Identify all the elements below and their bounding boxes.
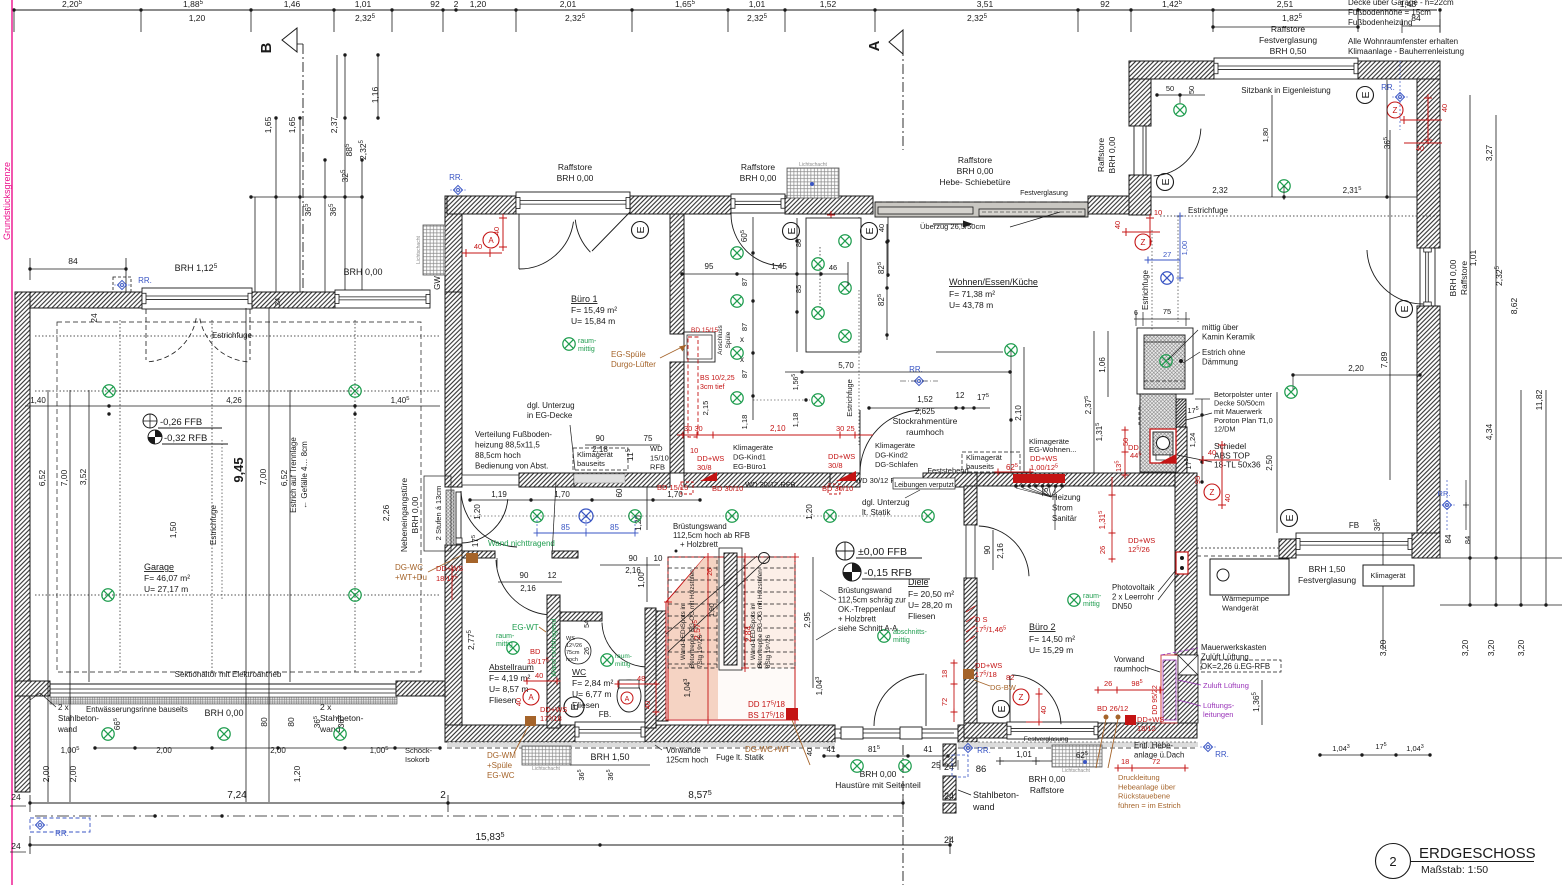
- svg-text:1,24: 1,24: [1188, 433, 1197, 448]
- svg-text:41: 41: [924, 745, 933, 754]
- svg-text:90: 90: [596, 434, 605, 443]
- svg-text:2,20: 2,20: [1348, 364, 1364, 373]
- svg-text:E: E: [1399, 305, 1411, 312]
- svg-text:50: 50: [1166, 84, 1174, 93]
- svg-text:Festverglasung: Festverglasung: [1024, 736, 1069, 743]
- svg-text:90: 90: [520, 571, 529, 580]
- svg-text:wand: wand: [972, 802, 995, 812]
- svg-text:Sektionaltor mit Elektroantrie: Sektionaltor mit Elektroantrieb: [175, 670, 282, 679]
- svg-text:Wärmepumpe: Wärmepumpe: [1222, 594, 1269, 603]
- svg-text:lt. Statik: lt. Statik: [862, 508, 891, 517]
- svg-text:Zuluft Lüftung: Zuluft Lüftung: [1203, 681, 1249, 690]
- svg-text:Leibungen verputzt: Leibungen verputzt: [894, 482, 954, 489]
- svg-text:Grundstücksgrenze: Grundstücksgrenze: [2, 162, 12, 240]
- svg-text:EG-Büro1: EG-Büro1: [733, 462, 766, 471]
- svg-text:-0,32 RFB: -0,32 RFB: [164, 433, 207, 444]
- svg-text:2,625: 2,625: [915, 407, 936, 416]
- svg-text:84: 84: [1463, 536, 1472, 544]
- svg-text:2,18: 2,18: [592, 445, 608, 454]
- svg-text:Betontreppe EG-OG mit Holzstuf: Betontreppe EG-OG mit Holzstufen: [757, 569, 764, 668]
- svg-text:2,16: 2,16: [625, 566, 641, 575]
- svg-text:2 Stufen á 13cm: 2 Stufen á 13cm: [434, 486, 443, 541]
- svg-text:40: 40: [805, 748, 814, 756]
- svg-text:25: 25: [931, 760, 941, 770]
- svg-text:2: 2: [440, 790, 446, 801]
- svg-text:F= 2,84 m²: F= 2,84 m²: [572, 678, 614, 688]
- svg-text:DG-WC+WT: DG-WC+WT: [745, 745, 790, 754]
- svg-text:24: 24: [89, 313, 99, 323]
- svg-text:Lichtschacht: Lichtschacht: [1062, 768, 1090, 774]
- svg-text:Heizung: Heizung: [1052, 493, 1081, 502]
- svg-text:2,37: 2,37: [329, 116, 339, 133]
- svg-text:11,82: 11,82: [1534, 389, 1544, 410]
- svg-text:leitungen: leitungen: [1203, 710, 1233, 719]
- svg-text:1,20: 1,20: [470, 0, 487, 9]
- svg-text:175/1,465: 175/1,465: [975, 625, 1006, 634]
- svg-text:Z: Z: [1210, 488, 1215, 497]
- svg-text:F= 71,38 m²: F= 71,38 m²: [949, 289, 995, 299]
- svg-text:A: A: [625, 696, 630, 703]
- svg-text:4,26: 4,26: [226, 396, 242, 405]
- svg-text:Sanitär: Sanitär: [1052, 514, 1077, 523]
- svg-text:Betontreppe EG-OG mit Holzstuf: Betontreppe EG-OG mit Holzstufen: [689, 569, 696, 668]
- svg-text:1,00/125: 1,00/125: [1030, 463, 1058, 472]
- svg-text:24: 24: [944, 762, 954, 772]
- svg-text:1,19: 1,19: [491, 490, 507, 499]
- svg-text:84: 84: [1444, 534, 1453, 543]
- svg-text:Wandgerät: Wandgerät: [1222, 603, 1259, 612]
- svg-text:27: 27: [1163, 250, 1171, 259]
- svg-text:dgl. Unterzug: dgl. Unterzug: [527, 401, 575, 410]
- svg-text:U= 28,20 m: U= 28,20 m: [908, 600, 952, 610]
- svg-text:EG-WT: EG-WT: [512, 623, 539, 632]
- svg-text:Fliesen: Fliesen: [908, 611, 936, 621]
- svg-text:1,20: 1,20: [292, 765, 302, 782]
- svg-text:Rückstauebene: Rückstauebene: [1118, 792, 1170, 801]
- svg-text:6,52: 6,52: [37, 469, 47, 486]
- svg-text:RR.: RR.: [138, 276, 152, 285]
- svg-text:85: 85: [610, 523, 619, 532]
- svg-text:Decke über Garage - h=22cm: Decke über Garage - h=22cm: [1348, 0, 1454, 7]
- svg-text:Fliesen: Fliesen: [489, 695, 517, 705]
- svg-text:DG-WM: DG-WM: [487, 751, 516, 760]
- svg-text:2,00: 2,00: [41, 765, 51, 782]
- svg-text:Stahlbeton-: Stahlbeton-: [58, 714, 99, 723]
- svg-text:Wand nichttragend: Wand nichttragend: [488, 539, 555, 548]
- svg-text:1,18: 1,18: [791, 413, 800, 428]
- svg-text:8Stg 19⁵/26: 8Stg 19⁵/26: [765, 634, 772, 668]
- svg-text:Druckleitung: Druckleitung: [1118, 773, 1160, 782]
- svg-text:Brüstungswand: Brüstungswand: [838, 586, 892, 595]
- svg-text:-0,26 FFB: -0,26 FFB: [160, 417, 202, 428]
- svg-text:2 x Leerrohr: 2 x Leerrohr: [1112, 593, 1154, 602]
- svg-text:DD+WS: DD+WS: [1128, 536, 1155, 545]
- svg-text:3,20: 3,20: [1460, 639, 1470, 656]
- svg-text:7,24: 7,24: [227, 790, 247, 801]
- svg-text:dgl. Unterzug: dgl. Unterzug: [862, 498, 910, 507]
- svg-text:raumhoch: raumhoch: [906, 427, 944, 437]
- svg-text:Z: Z: [1019, 693, 1024, 702]
- svg-text:F= 46,07 m²: F= 46,07 m²: [144, 573, 190, 583]
- svg-text:10: 10: [690, 446, 698, 455]
- svg-text:BRH 0,00: BRH 0,00: [957, 166, 994, 176]
- svg-text:GW: GW: [433, 276, 442, 290]
- svg-text:40: 40: [1223, 494, 1232, 502]
- svg-text:26: 26: [1104, 679, 1112, 688]
- svg-text:7Stg 19⁵/26: 7Stg 19⁵/26: [697, 634, 704, 668]
- svg-text:F= 14,50 m²: F= 14,50 m²: [1029, 634, 1075, 644]
- svg-text:DD+WS: DD+WS: [828, 452, 855, 461]
- svg-text:50: 50: [1187, 86, 1196, 94]
- svg-text:40: 40: [643, 701, 652, 709]
- svg-text:bauseits: bauseits: [966, 462, 994, 471]
- svg-text:87: 87: [740, 370, 749, 378]
- svg-text:Wohnen/Essen/Küche: Wohnen/Essen/Küche: [949, 277, 1038, 287]
- svg-text:DG-BW: DG-BW: [990, 683, 1017, 692]
- svg-text:E: E: [996, 705, 1008, 712]
- svg-text:84: 84: [68, 256, 78, 266]
- svg-text:DD+WS: DD+WS: [1030, 454, 1057, 463]
- svg-text:75: 75: [644, 434, 653, 443]
- svg-text:18/12: 18/12: [1137, 724, 1156, 733]
- svg-text:EG-Spüle: EG-Spüle: [611, 350, 646, 359]
- svg-text:±0,00 FFB: ±0,00 FFB: [858, 546, 907, 558]
- svg-text:Lichtschacht: Lichtschacht: [416, 235, 422, 263]
- svg-text:+ Holzbrett: + Holzbrett: [838, 615, 877, 624]
- svg-text:RR.: RR.: [1215, 750, 1229, 759]
- svg-text:WC: WC: [572, 667, 586, 677]
- svg-text:Büro 1: Büro 1: [571, 294, 598, 304]
- svg-text:30/8: 30/8: [697, 463, 712, 472]
- svg-text:Durgo-Lüfter: Durgo-Lüfter: [611, 360, 656, 369]
- svg-text:ERDGESCHOSS: ERDGESCHOSS: [1419, 845, 1536, 862]
- svg-text:40: 40: [877, 224, 886, 232]
- svg-text:BD 15/15: BD 15/15: [657, 483, 688, 492]
- svg-text:40: 40: [514, 698, 523, 706]
- svg-text:2,26: 2,26: [381, 504, 391, 521]
- svg-text:Bedienung von Abst.: Bedienung von Abst.: [475, 462, 548, 471]
- svg-text:Alle Wohnraumfenster erhalten: Alle Wohnraumfenster erhalten: [1348, 37, 1458, 46]
- svg-text:40: 40: [492, 227, 501, 235]
- svg-text:9,45: 9,45: [231, 457, 246, 482]
- svg-text:EG-WC: EG-WC: [487, 771, 515, 780]
- svg-text:26: 26: [707, 568, 714, 576]
- svg-text:80: 80: [794, 239, 803, 247]
- svg-text:Dämmung: Dämmung: [1202, 358, 1238, 367]
- svg-text:Entwässerungsrinne bauseits: Entwässerungsrinne bauseits: [86, 705, 188, 714]
- svg-text:Stockrahmentüre: Stockrahmentüre: [893, 416, 958, 426]
- svg-text:1,40: 1,40: [30, 396, 46, 405]
- svg-text:D S: D S: [975, 615, 988, 624]
- svg-text:FB: FB: [1349, 521, 1359, 530]
- svg-text:75: 75: [1041, 487, 1050, 496]
- svg-text:BS 175/18: BS 175/18: [748, 711, 785, 720]
- svg-text:DD 175/18: DD 175/18: [748, 700, 786, 709]
- svg-text:95: 95: [705, 262, 714, 271]
- svg-text:Fußbodenheizung: Fußbodenheizung: [1348, 18, 1413, 27]
- svg-text:92: 92: [1100, 0, 1110, 9]
- svg-text:75cm: 75cm: [566, 650, 580, 656]
- svg-text:DG-Schlafen: DG-Schlafen: [875, 460, 918, 469]
- svg-text:24: 24: [273, 298, 282, 306]
- svg-text:Raffstore: Raffstore: [558, 162, 593, 172]
- svg-text:Lichtschacht: Lichtschacht: [799, 162, 827, 168]
- svg-text:2,15: 2,15: [701, 401, 710, 416]
- svg-text:Estrichfuge: Estrichfuge: [212, 331, 253, 340]
- svg-text:Verteilung Fußboden-: Verteilung Fußboden-: [475, 430, 552, 439]
- svg-text:Fuge lt. Statik: Fuge lt. Statik: [716, 753, 764, 762]
- svg-text:2,00: 2,00: [156, 746, 172, 755]
- svg-text:92: 92: [430, 0, 440, 9]
- svg-text:40: 40: [1208, 448, 1216, 457]
- svg-text:Raffstore: Raffstore: [1096, 138, 1106, 173]
- svg-text:80: 80: [286, 717, 296, 727]
- svg-text:BRH 0,00: BRH 0,00: [1448, 259, 1458, 296]
- svg-text:40: 40: [535, 671, 543, 680]
- svg-text:2,16: 2,16: [520, 584, 536, 593]
- svg-text:E: E: [864, 227, 876, 234]
- svg-text:RR.: RR.: [977, 746, 991, 755]
- svg-text:raum-: raum-: [578, 338, 597, 345]
- svg-text:Estrichfuge: Estrichfuge: [1188, 206, 1229, 215]
- svg-text:26: 26: [584, 647, 591, 655]
- svg-text:2,10: 2,10: [1014, 405, 1023, 421]
- svg-text:A: A: [866, 40, 883, 51]
- svg-text:54: 54: [584, 620, 591, 628]
- svg-text:87: 87: [740, 323, 749, 331]
- svg-text:2 x: 2 x: [58, 703, 69, 712]
- svg-text:DD+WS: DD+WS: [1137, 715, 1164, 724]
- svg-text:125/26: 125/26: [1128, 545, 1150, 554]
- svg-text:Vorwände: Vorwände: [666, 746, 701, 755]
- svg-text:Raffstore: Raffstore: [741, 162, 776, 172]
- svg-text:Wand nichttragend: Wand nichttragend: [551, 618, 558, 677]
- svg-text:-0,15 RFB: -0,15 RFB: [864, 567, 912, 579]
- svg-text:RR.: RR.: [449, 173, 463, 182]
- svg-text:175/18: 175/18: [540, 714, 562, 723]
- svg-text:F= 15,49 m²: F= 15,49 m²: [571, 305, 617, 315]
- svg-text:raumhoch: raumhoch: [1114, 665, 1149, 674]
- svg-text:E: E: [569, 703, 581, 710]
- svg-text:1,46: 1,46: [284, 0, 301, 9]
- svg-text:3,51: 3,51: [977, 0, 994, 9]
- svg-text:BRH 1,125: BRH 1,125: [175, 263, 218, 273]
- svg-text:Festverglasung: Festverglasung: [1298, 575, 1356, 585]
- svg-text:A: A: [488, 236, 494, 245]
- svg-text:Raffstore: Raffstore: [1030, 785, 1065, 795]
- svg-text:DD+WS: DD+WS: [436, 564, 463, 573]
- svg-text:RFB: RFB: [650, 463, 665, 472]
- svg-text:18: 18: [1121, 757, 1129, 766]
- svg-text:40: 40: [1039, 706, 1048, 714]
- svg-text:bauseits: bauseits: [577, 459, 605, 468]
- svg-text:DG-WC: DG-WC: [395, 563, 423, 572]
- svg-text:60: 60: [615, 488, 624, 497]
- svg-text:mittig: mittig: [893, 637, 910, 644]
- svg-text:Spüle: Spüle: [725, 331, 732, 348]
- svg-text:Estrichfuge: Estrichfuge: [209, 504, 218, 545]
- svg-text:Sitzbank in Eigenleistung: Sitzbank in Eigenleistung: [1241, 86, 1330, 95]
- svg-text:15/10: 15/10: [650, 453, 669, 462]
- svg-text:1,01: 1,01: [749, 0, 766, 9]
- svg-text:Lichtschacht: Lichtschacht: [532, 766, 560, 772]
- svg-text:2,00: 2,00: [270, 746, 286, 755]
- svg-text:1,50: 1,50: [168, 521, 178, 538]
- svg-text:24: 24: [944, 791, 954, 801]
- svg-text:+ Holzbrett: + Holzbrett: [680, 540, 719, 549]
- svg-text:mittig: mittig: [615, 661, 631, 668]
- svg-text:EG-Wohnen...: EG-Wohnen...: [1029, 445, 1076, 454]
- svg-text:18: 18: [940, 670, 949, 678]
- svg-text:Z: Z: [1141, 238, 1146, 247]
- svg-text:72: 72: [1152, 757, 1160, 766]
- svg-text:BD: BD: [530, 647, 541, 656]
- svg-text:mittig über: mittig über: [1202, 323, 1239, 332]
- svg-text:1,01: 1,01: [355, 0, 372, 9]
- svg-text:88,5cm hoch: 88,5cm hoch: [475, 451, 521, 460]
- svg-text:41: 41: [827, 745, 836, 754]
- svg-text:Estrich ohne: Estrich ohne: [1202, 348, 1245, 357]
- svg-text:72: 72: [940, 698, 949, 706]
- svg-text:BRH 0,00: BRH 0,00: [557, 173, 594, 183]
- svg-text:BRH 1,50: BRH 1,50: [1309, 564, 1346, 574]
- svg-text:85: 85: [794, 285, 803, 293]
- svg-text:3,20: 3,20: [1516, 639, 1526, 656]
- svg-text:Wand-LED-Spots in: Wand-LED-Spots in: [750, 604, 757, 660]
- svg-text:1,20: 1,20: [805, 504, 814, 520]
- svg-text:Estrichfuge: Estrichfuge: [845, 379, 854, 417]
- svg-text:Wand-LED-Spots in: Wand-LED-Spots in: [680, 604, 687, 660]
- svg-text:x: x: [740, 335, 744, 344]
- svg-text:1,00: 1,00: [1180, 241, 1189, 256]
- svg-text:BRH 0,00: BRH 0,00: [860, 769, 897, 779]
- svg-text:87: 87: [740, 278, 749, 286]
- svg-text:in EG-Decke: in EG-Decke: [527, 411, 573, 420]
- svg-text:x: x: [740, 355, 744, 364]
- svg-text:RR.: RR.: [1381, 83, 1395, 92]
- svg-text:DN50: DN50: [1112, 602, 1133, 611]
- svg-text:2,16: 2,16: [996, 543, 1005, 559]
- svg-text:3,20: 3,20: [1378, 639, 1388, 656]
- svg-text:1,20: 1,20: [473, 504, 482, 520]
- svg-text:BD 30/10: BD 30/10: [712, 484, 743, 493]
- svg-text:1,65: 1,65: [287, 116, 297, 133]
- svg-text:Klimagerät: Klimagerät: [966, 453, 1003, 462]
- svg-text:RR.: RR.: [1438, 489, 1451, 498]
- svg-text:40: 40: [474, 242, 482, 251]
- svg-text:46: 46: [829, 263, 837, 272]
- svg-text:8,62: 8,62: [1509, 297, 1519, 314]
- svg-text:Isokorb: Isokorb: [405, 755, 430, 764]
- svg-text:75: 75: [1163, 307, 1171, 316]
- svg-text:2: 2: [454, 0, 459, 9]
- svg-text:90: 90: [983, 545, 992, 554]
- svg-text:15,835: 15,835: [475, 830, 504, 843]
- svg-text:A: A: [528, 693, 534, 702]
- svg-text:OK=2,26 ü.EG-RFB: OK=2,26 ü.EG-RFB: [1201, 662, 1270, 671]
- svg-text:OK.-Treppenlauf: OK.-Treppenlauf: [838, 605, 896, 614]
- svg-text:WD 30/12 RFB: WD 30/12 RFB: [745, 480, 795, 489]
- svg-text:BRH 0,00: BRH 0,00: [1029, 774, 1066, 784]
- svg-text:1,06: 1,06: [1098, 357, 1107, 373]
- svg-text:112,5cm hoch ab RFB: 112,5cm hoch ab RFB: [673, 531, 750, 540]
- svg-text:abschnitts-: abschnitts-: [893, 629, 928, 636]
- svg-text:DD 95/22: DD 95/22: [1152, 685, 1159, 715]
- svg-text:86: 86: [976, 764, 987, 775]
- svg-text:4,34: 4,34: [1484, 423, 1494, 440]
- svg-text:125cm hoch: 125cm hoch: [666, 756, 708, 765]
- svg-text:18-TL 50x36: 18-TL 50x36: [1214, 460, 1261, 470]
- svg-text:1,52: 1,52: [917, 395, 933, 404]
- svg-text:Feststehend: Feststehend: [927, 466, 968, 475]
- svg-text:7,00: 7,00: [258, 468, 268, 485]
- svg-text:1,70: 1,70: [554, 490, 570, 499]
- svg-text:E: E: [1360, 91, 1372, 98]
- svg-text:30/8: 30/8: [828, 461, 843, 470]
- svg-text:18/175: 18/175: [436, 574, 458, 583]
- svg-text:DD+WS: DD+WS: [975, 661, 1002, 670]
- svg-text:1,65: 1,65: [263, 116, 273, 133]
- svg-text:26: 26: [1098, 546, 1107, 554]
- svg-text:Z: Z: [1393, 106, 1398, 115]
- svg-text:40: 40: [1416, 144, 1424, 153]
- svg-text:Klimageräte: Klimageräte: [733, 443, 773, 452]
- svg-text:Nebeneingangstüre: Nebeneingangstüre: [399, 478, 409, 552]
- svg-text:24: 24: [11, 841, 21, 851]
- svg-text:E: E: [786, 227, 798, 234]
- svg-text:7,00: 7,00: [59, 469, 69, 486]
- svg-text:2,10: 2,10: [770, 424, 786, 433]
- svg-text:2,00: 2,00: [68, 765, 78, 782]
- svg-text:F= 20,50 m²: F= 20,50 m²: [908, 589, 954, 599]
- svg-text:1,18: 1,18: [740, 415, 749, 430]
- svg-text:U= 15,84 m: U= 15,84 m: [571, 316, 615, 326]
- svg-text:1,01: 1,01: [1468, 249, 1478, 266]
- svg-text:12/DM: 12/DM: [1214, 424, 1236, 433]
- svg-text:FB.: FB.: [599, 710, 611, 719]
- svg-text:12: 12: [956, 391, 965, 400]
- svg-text:3,20: 3,20: [1486, 639, 1496, 656]
- svg-text:Garage: Garage: [144, 562, 174, 572]
- svg-text:Estrichfuge: Estrichfuge: [1141, 269, 1150, 310]
- svg-text:Festverglasung: Festverglasung: [1259, 35, 1317, 45]
- svg-text:12: 12: [548, 571, 557, 580]
- svg-text:E: E: [1160, 178, 1172, 185]
- svg-text:Raffstore: Raffstore: [1271, 24, 1306, 34]
- svg-text:Stahlbeton-: Stahlbeton-: [973, 790, 1019, 800]
- svg-text:U= 15,29 m: U= 15,29 m: [1029, 645, 1073, 655]
- svg-text:U= 43,78 m: U= 43,78 m: [949, 300, 993, 310]
- svg-text:raum-: raum-: [1083, 593, 1102, 600]
- svg-text:mittig: mittig: [578, 346, 595, 353]
- svg-text:48: 48: [637, 674, 645, 683]
- svg-text:1,01: 1,01: [1016, 750, 1032, 759]
- svg-text:BRH 0,00: BRH 0,00: [740, 173, 777, 183]
- svg-text:1,45: 1,45: [771, 262, 787, 271]
- svg-text:1,52: 1,52: [820, 0, 837, 9]
- svg-text:Schöck-: Schöck-: [405, 746, 433, 755]
- svg-text:DD+WS: DD+WS: [540, 705, 567, 714]
- svg-text:DG-Kind2: DG-Kind2: [875, 451, 908, 460]
- svg-text:2,51: 2,51: [1277, 0, 1294, 9]
- svg-text:U= 27,17 m: U= 27,17 m: [144, 584, 188, 594]
- svg-text:RR.: RR.: [55, 829, 69, 838]
- svg-text:Raffstore: Raffstore: [958, 155, 993, 165]
- svg-text:95: 95: [1193, 476, 1202, 484]
- svg-text:112,5cm schräg zur: 112,5cm schräg zur: [838, 596, 906, 605]
- svg-text:Haustüre mit Seitenteil: Haustüre mit Seitenteil: [835, 780, 921, 790]
- svg-text:2,01: 2,01: [560, 0, 577, 9]
